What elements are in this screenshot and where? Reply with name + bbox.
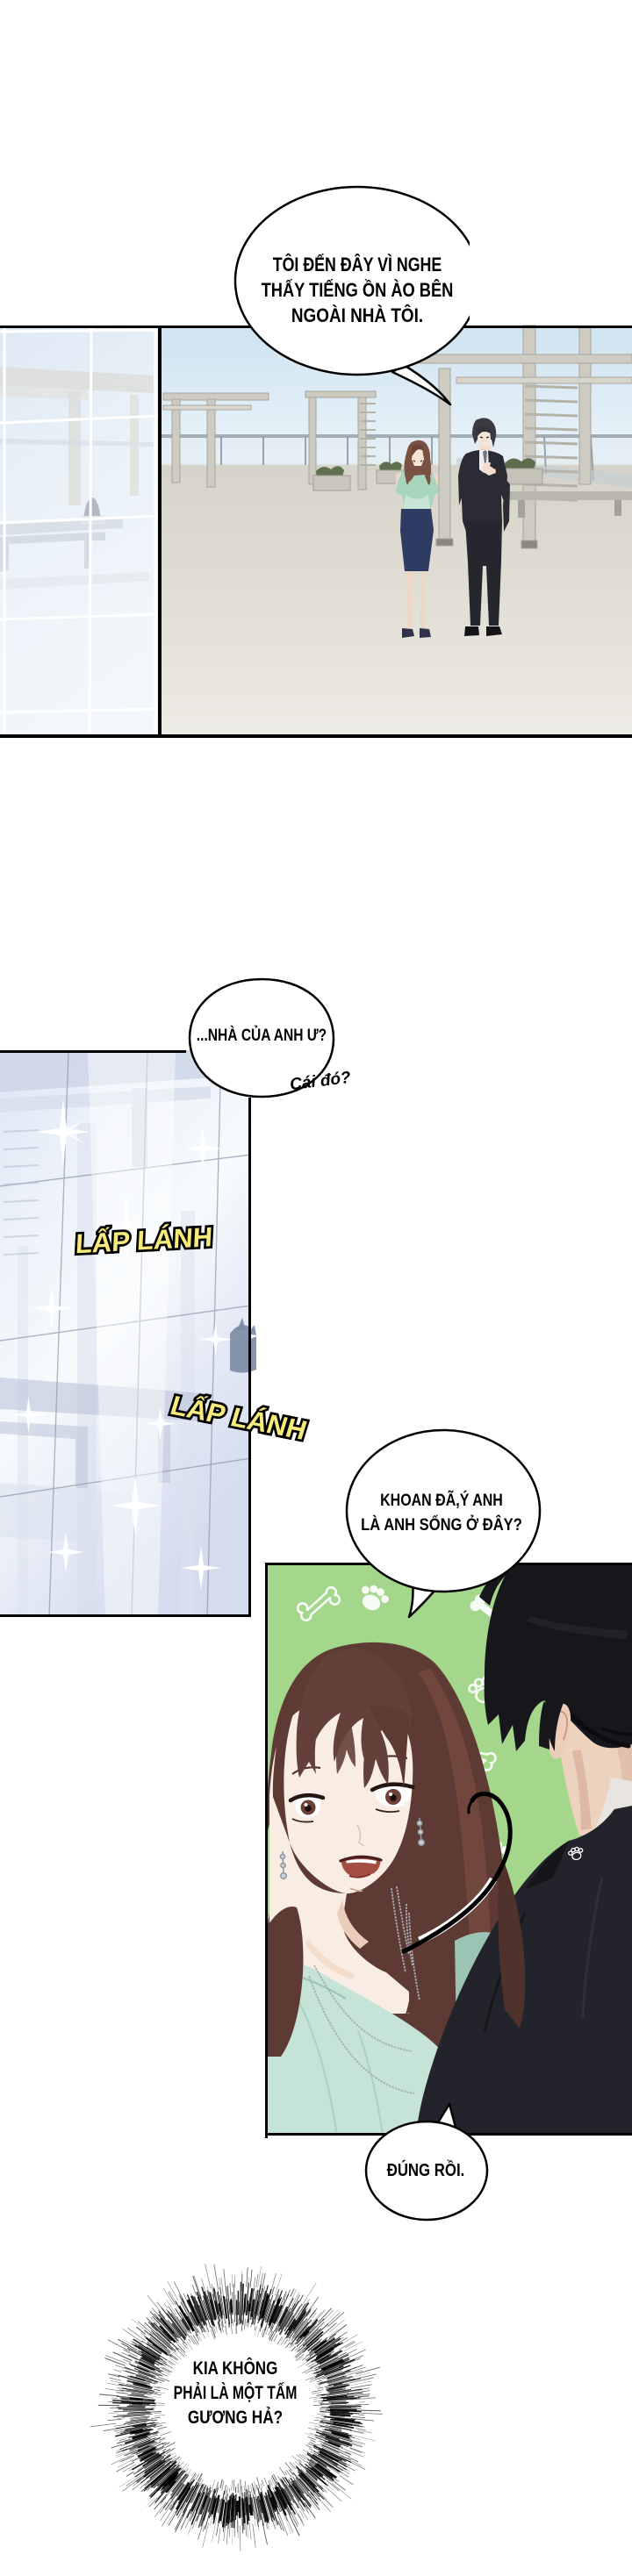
svg-text:LẤP LÁNH: LẤP LÁNH [75, 1221, 213, 1259]
svg-text:Cái đó?: Cái đó? [289, 1069, 352, 1094]
svg-text:PHẢI LÀ MỘT TẤM: PHẢI LÀ MỘT TẤM [174, 2382, 298, 2403]
svg-text:ĐÚNG RỒI.: ĐÚNG RỒI. [387, 2160, 465, 2180]
svg-text:KIA KHÔNG: KIA KHÔNG [193, 2358, 278, 2379]
svg-text:GƯƠNG HẢ?: GƯƠNG HẢ? [188, 2407, 283, 2428]
svg-text:KHOAN ĐÃ,Ý ANH: KHOAN ĐÃ,Ý ANH [380, 1489, 503, 1509]
svg-text:LẤP LÁNH: LẤP LÁNH [167, 1391, 311, 1446]
svg-text:NGOÀI NHÀ TÔI.: NGOÀI NHÀ TÔI. [291, 304, 423, 327]
svg-text:...NHÀ CỦA ANH Ư?: ...NHÀ CỦA ANH Ư? [197, 1026, 327, 1045]
svg-text:TÔI ĐẾN ĐÂY VÌ NGHE: TÔI ĐẾN ĐÂY VÌ NGHE [273, 253, 442, 275]
svg-text:THẤY TIẾNG ỒN ÀO BÊN: THẤY TIẾNG ỒN ÀO BÊN [262, 278, 454, 301]
svg-text:LÀ ANH SỐNG Ở ĐÂY?: LÀ ANH SỐNG Ở ĐÂY? [361, 1514, 522, 1535]
